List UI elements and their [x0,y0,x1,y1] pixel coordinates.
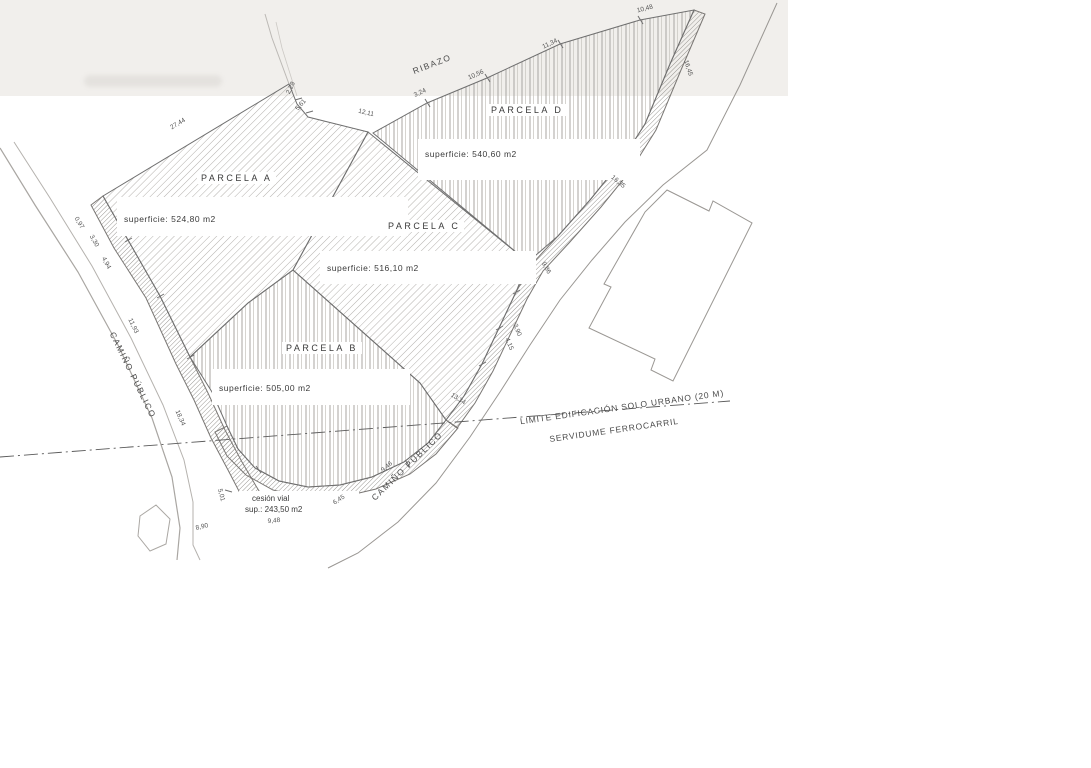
parcel-d-area: superficie: 540,60 m2 [425,149,517,159]
cadastral-site-plan: PARCELA A PARCELA B PARCELA C PARCELA D … [0,0,1091,768]
dimension-label: 9,48 [267,517,280,525]
parcel-c-area: superficie: 516,10 m2 [327,263,419,273]
parcel-d-label: PARCELA D [487,104,567,116]
parcel-b-label: PARCELA B [282,342,362,354]
road-fork-island [138,505,170,551]
parcel-a-label: PARCELA A [197,172,276,184]
scan-smudge [84,75,222,87]
parcel-c-label: PARCELA C [384,220,464,232]
building-outline [589,190,752,381]
cesion-vial-label: cesión vial [252,494,289,503]
parcel-b-area: superficie: 505,00 m2 [219,383,311,393]
area-box-d [418,139,640,180]
parcel-a-area: superficie: 524,80 m2 [124,214,216,224]
cesion-vial-area: sup.: 243,50 m2 [245,505,302,514]
